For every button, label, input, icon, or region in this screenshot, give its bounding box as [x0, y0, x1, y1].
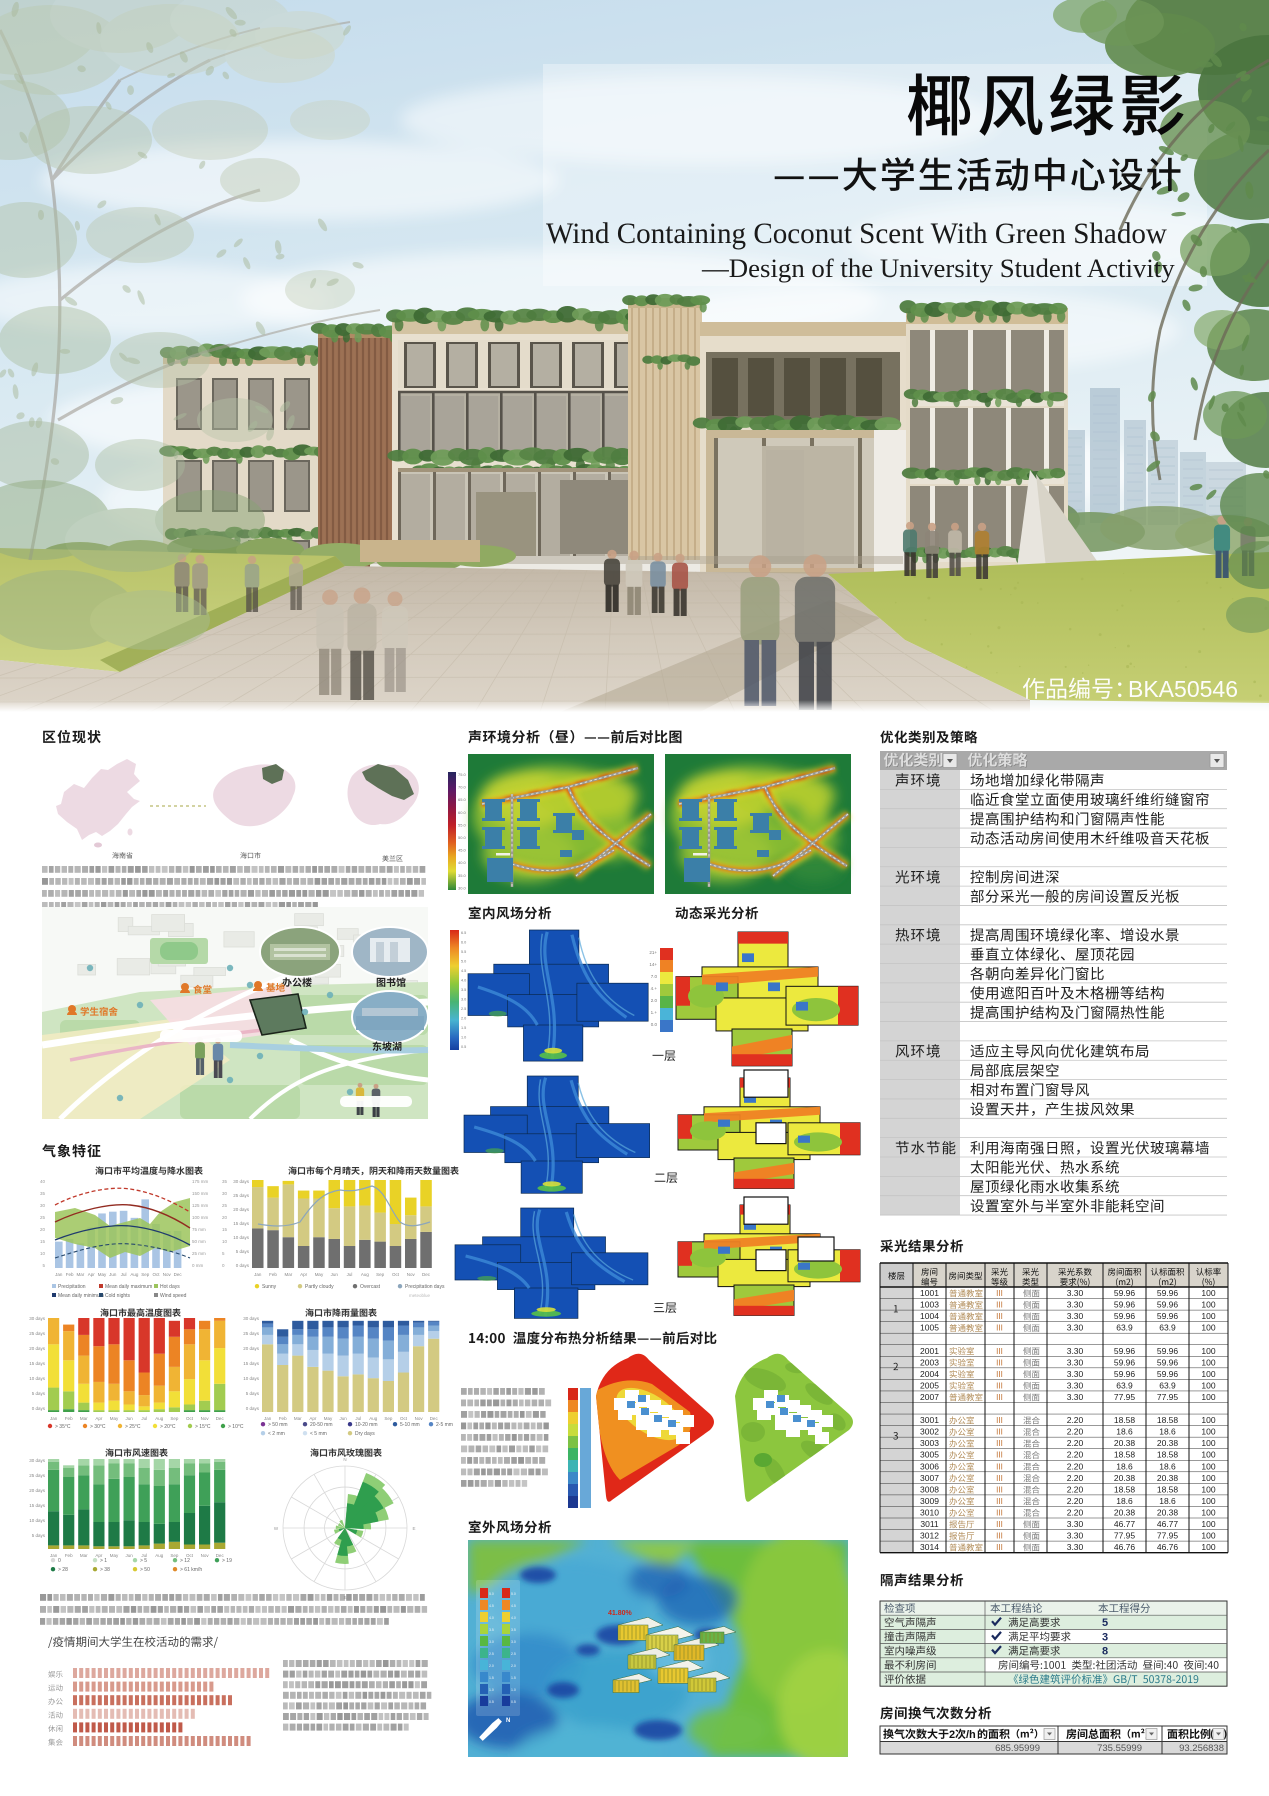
svg-text:Jan: Jan [55, 1272, 63, 1277]
svg-text:Oct: Oct [152, 1272, 160, 1277]
svg-text:125 mm: 125 mm [192, 1203, 209, 1208]
svg-text:III: III [996, 1393, 1003, 1402]
svg-text:100: 100 [1201, 1346, 1215, 1356]
svg-text:5.5: 5.5 [461, 950, 466, 954]
svg-text:Jan: Jan [254, 1272, 262, 1277]
svg-text:> 28: > 28 [58, 1567, 68, 1573]
svg-text:20-50 mm: 20-50 mm [310, 1422, 333, 1428]
svg-text:Sep: Sep [384, 1416, 393, 1421]
svg-text:8: 8 [1102, 1646, 1108, 1658]
svg-text:III: III [996, 1289, 1003, 1298]
svg-text:3.30: 3.30 [1067, 1357, 1084, 1367]
svg-text:35.0: 35.0 [458, 873, 467, 878]
svg-text:18.6: 18.6 [1159, 1427, 1176, 1437]
svg-text:59.96: 59.96 [1157, 1300, 1179, 1310]
svg-text:63.9: 63.9 [1116, 1323, 1133, 1333]
svg-text:18.58: 18.58 [1157, 1415, 1179, 1425]
svg-text:0.5: 0.5 [489, 1700, 494, 1704]
svg-text:Sep: Sep [170, 1553, 179, 1558]
svg-text:4.0: 4.0 [461, 979, 466, 983]
svg-text:25 days: 25 days [233, 1193, 250, 1198]
svg-text:III: III [996, 1428, 1003, 1437]
svg-text:5: 5 [1102, 1617, 1108, 1629]
svg-text:Jun: Jun [125, 1553, 133, 1558]
svg-text:35: 35 [222, 1179, 228, 1184]
svg-text:3.0: 3.0 [511, 1640, 516, 1644]
svg-text:III: III [996, 1301, 1003, 1310]
svg-text:2003: 2003 [920, 1357, 939, 1367]
svg-text:2: 2 [949, 1729, 955, 1741]
svg-text:59.96: 59.96 [1157, 1357, 1179, 1367]
svg-text:May: May [315, 1272, 324, 1277]
svg-text:25: 25 [222, 1203, 228, 1208]
svg-text:III: III [996, 1520, 1003, 1529]
svg-text:59.96: 59.96 [1157, 1311, 1179, 1321]
svg-text:25: 25 [40, 1215, 46, 1220]
svg-text:100: 100 [1201, 1438, 1215, 1448]
svg-text:59.96: 59.96 [1157, 1369, 1179, 1379]
svg-text:50.0: 50.0 [458, 835, 467, 840]
svg-text:59.96: 59.96 [1157, 1288, 1179, 1298]
svg-text:55.0: 55.0 [458, 822, 467, 827]
svg-text:> 5: > 5 [140, 1558, 147, 1564]
svg-text:1.0: 1.0 [461, 1036, 466, 1040]
svg-text:2.20: 2.20 [1067, 1450, 1084, 1460]
svg-text:> 15°C: > 15°C [195, 1424, 211, 1430]
svg-text:5 days: 5 days [32, 1391, 46, 1396]
svg-text:3001: 3001 [920, 1415, 939, 1425]
svg-text:3.30: 3.30 [1067, 1519, 1084, 1529]
svg-text:35: 35 [40, 1191, 46, 1196]
svg-text:2.20: 2.20 [1067, 1507, 1084, 1517]
svg-text:Partly cloudy: Partly cloudy [305, 1284, 334, 1290]
svg-text:100: 100 [1201, 1531, 1215, 1541]
svg-text:30 days: 30 days [29, 1316, 46, 1321]
svg-text:2004: 2004 [920, 1369, 939, 1379]
svg-text:2001: 2001 [920, 1346, 939, 1356]
svg-text:30: 30 [40, 1203, 46, 1208]
svg-text:N: N [343, 1457, 346, 1462]
svg-text:E: E [412, 1526, 415, 1531]
svg-text:Jun: Jun [331, 1272, 339, 1277]
svg-text:3.30: 3.30 [1067, 1531, 1084, 1541]
svg-text:1.+: 1.+ [651, 1010, 658, 1015]
svg-text:15: 15 [40, 1239, 46, 1244]
svg-text:4.5: 4.5 [489, 1604, 494, 1608]
svg-text:Sep: Sep [376, 1272, 385, 1277]
svg-text:Dec: Dec [174, 1272, 183, 1277]
svg-text:> 38: > 38 [100, 1567, 110, 1573]
svg-text:III: III [996, 1381, 1003, 1390]
svg-text:18.58: 18.58 [1114, 1484, 1136, 1494]
svg-text:4.5: 4.5 [461, 969, 466, 973]
svg-text:Nov: Nov [415, 1416, 424, 1421]
svg-text:1.0: 1.0 [511, 1688, 516, 1692]
svg-text:25 mm: 25 mm [192, 1251, 206, 1256]
svg-text:May: May [110, 1416, 119, 1421]
svg-text:20 days: 20 days [29, 1488, 46, 1493]
svg-text:Apr: Apr [300, 1272, 308, 1277]
svg-text:2.20: 2.20 [1067, 1427, 1084, 1437]
svg-text:Aug: Aug [155, 1553, 164, 1558]
svg-text:15 days: 15 days [29, 1503, 46, 1508]
svg-text:2005: 2005 [920, 1380, 939, 1390]
svg-text:5.0: 5.0 [461, 960, 466, 964]
svg-text:2.5: 2.5 [461, 1007, 466, 1011]
svg-text:59.96: 59.96 [1114, 1369, 1136, 1379]
svg-text:/h: /h [966, 1729, 976, 1741]
svg-text:> 1: > 1 [100, 1558, 107, 1564]
svg-text:Aug: Aug [369, 1416, 378, 1421]
svg-text:685.95999: 685.95999 [995, 1743, 1040, 1754]
svg-text:100: 100 [1201, 1300, 1215, 1310]
svg-text:1004: 1004 [920, 1311, 939, 1321]
svg-text:20.38: 20.38 [1114, 1473, 1136, 1483]
svg-text:4.+: 4.+ [651, 986, 658, 991]
svg-text:1003: 1003 [920, 1300, 939, 1310]
svg-text:3005: 3005 [920, 1450, 939, 1460]
svg-text:Overcast: Overcast [360, 1284, 381, 1290]
svg-text:20: 20 [222, 1215, 228, 1220]
svg-text:10 days: 10 days [29, 1376, 46, 1381]
svg-text:15 days: 15 days [233, 1221, 250, 1226]
svg-text:18.58: 18.58 [1157, 1450, 1179, 1460]
svg-text:Jan: Jan [50, 1553, 58, 1558]
svg-text:1.0: 1.0 [489, 1688, 494, 1692]
svg-text:65.0: 65.0 [458, 797, 467, 802]
svg-text:Nov: Nov [407, 1272, 416, 1277]
svg-text:III: III [996, 1508, 1003, 1517]
svg-text:> 61 km/h: > 61 km/h [180, 1567, 202, 1573]
svg-text:100: 100 [1201, 1507, 1215, 1517]
svg-text:Dry days: Dry days [355, 1431, 375, 1437]
svg-text:2.20: 2.20 [1067, 1496, 1084, 1506]
svg-text:18.58: 18.58 [1114, 1450, 1136, 1460]
svg-text:> 35°C: > 35°C [55, 1424, 71, 1430]
svg-text:18.6: 18.6 [1116, 1427, 1133, 1437]
svg-text:III: III [996, 1347, 1003, 1356]
svg-text:III: III [996, 1543, 1003, 1552]
svg-text:100: 100 [1201, 1392, 1215, 1402]
svg-text:Oct: Oct [400, 1416, 408, 1421]
svg-text:III: III [996, 1358, 1003, 1367]
svg-text:III: III [996, 1324, 1003, 1333]
svg-text:Jun: Jun [339, 1416, 347, 1421]
svg-text:> 50: > 50 [140, 1567, 150, 1573]
svg-text:10 days: 10 days [29, 1518, 46, 1523]
svg-text:Wind Containing Coconut Scent: Wind Containing Coconut Scent With Green… [546, 218, 1167, 250]
svg-text:15 days: 15 days [243, 1361, 260, 1366]
svg-text:> 10°C: > 10°C [228, 1424, 244, 1430]
svg-text:Jul: Jul [355, 1416, 361, 1421]
svg-text:1.5: 1.5 [511, 1676, 516, 1680]
svg-text:III: III [996, 1416, 1003, 1425]
svg-text:3014: 3014 [920, 1542, 939, 1552]
svg-text:63.9: 63.9 [1159, 1380, 1176, 1390]
svg-text:3.0: 3.0 [489, 1640, 494, 1644]
svg-text:46.76: 46.76 [1157, 1542, 1179, 1552]
svg-text:III: III [996, 1451, 1003, 1460]
svg-text:3009: 3009 [920, 1496, 939, 1506]
svg-text:20.38: 20.38 [1157, 1473, 1179, 1483]
svg-text:Dec: Dec [430, 1416, 439, 1421]
svg-text:3.0: 3.0 [461, 998, 466, 1002]
svg-text:5 days: 5 days [236, 1249, 250, 1254]
svg-text:175 mm: 175 mm [192, 1179, 209, 1184]
svg-text:2.0: 2.0 [511, 1664, 516, 1668]
svg-text:Mean daily maximum: Mean daily maximum [105, 1284, 152, 1290]
svg-text:25 days: 25 days [29, 1331, 46, 1336]
svg-text:20 days: 20 days [233, 1207, 250, 1212]
svg-text:2.20: 2.20 [1067, 1438, 1084, 1448]
svg-text:75 mm: 75 mm [192, 1227, 206, 1232]
svg-text:46.77: 46.77 [1157, 1519, 1179, 1529]
svg-text:1.5: 1.5 [489, 1676, 494, 1680]
svg-text:100: 100 [1201, 1473, 1215, 1483]
svg-text:3011: 3011 [920, 1519, 939, 1529]
svg-text:18.6: 18.6 [1159, 1496, 1176, 1506]
svg-text:3.30: 3.30 [1067, 1392, 1084, 1402]
svg-text:1005: 1005 [920, 1323, 939, 1333]
svg-text:100: 100 [1201, 1357, 1215, 1367]
svg-text:18.6: 18.6 [1159, 1461, 1176, 1471]
svg-text:Nov: Nov [201, 1553, 210, 1558]
svg-text:III: III [996, 1485, 1003, 1494]
svg-text:Feb: Feb [65, 1553, 73, 1558]
svg-text:18.6: 18.6 [1116, 1496, 1133, 1506]
svg-text:Jul: Jul [121, 1272, 127, 1277]
svg-text:20.38: 20.38 [1157, 1438, 1179, 1448]
svg-text:30.0: 30.0 [458, 885, 467, 890]
svg-text:10: 10 [222, 1239, 228, 1244]
svg-text:0 mm: 0 mm [192, 1263, 204, 1268]
svg-text:Nov: Nov [201, 1416, 210, 1421]
svg-text:100: 100 [1201, 1496, 1215, 1506]
svg-text:Aug: Aug [155, 1416, 164, 1421]
svg-text:20 days: 20 days [29, 1346, 46, 1351]
svg-text:100: 100 [1201, 1369, 1215, 1379]
svg-text:> 20°C: > 20°C [160, 1424, 176, 1430]
svg-text:20: 20 [40, 1227, 46, 1232]
svg-text:18.6: 18.6 [1116, 1461, 1133, 1471]
svg-text:3: 3 [1102, 1631, 1108, 1643]
svg-text:5.0: 5.0 [489, 1592, 494, 1596]
svg-text:3.5: 3.5 [489, 1628, 494, 1632]
svg-text:7.0: 7.0 [651, 974, 658, 979]
svg-text:100: 100 [1201, 1484, 1215, 1494]
svg-text:3006: 3006 [920, 1461, 939, 1471]
svg-text:59.96: 59.96 [1114, 1300, 1136, 1310]
svg-text:Mar: Mar [80, 1416, 88, 1421]
svg-text:100 mm: 100 mm [192, 1215, 209, 1220]
svg-text:3007: 3007 [920, 1473, 939, 1483]
svg-text:77.95: 77.95 [1114, 1392, 1136, 1402]
svg-text:30 days: 30 days [29, 1458, 46, 1463]
svg-text:100: 100 [1201, 1415, 1215, 1425]
svg-text:< 2 mm: < 2 mm [268, 1431, 285, 1437]
svg-text:Dec: Dec [422, 1272, 431, 1277]
svg-text:3.30: 3.30 [1067, 1369, 1084, 1379]
svg-text:20.38: 20.38 [1114, 1507, 1136, 1517]
svg-text:3.5: 3.5 [511, 1628, 516, 1632]
svg-text:> 25°C: > 25°C [125, 1424, 141, 1430]
svg-text:15: 15 [222, 1227, 228, 1232]
svg-text:> 30°C: > 30°C [90, 1424, 106, 1430]
svg-text:0: 0 [58, 1558, 61, 1564]
svg-text:3.30: 3.30 [1067, 1288, 1084, 1298]
svg-text:Oct: Oct [392, 1272, 400, 1277]
svg-text:18.58: 18.58 [1157, 1484, 1179, 1494]
svg-text:Nov: Nov [163, 1272, 172, 1277]
svg-text:Oct: Oct [186, 1416, 194, 1421]
svg-text:N: N [506, 1718, 510, 1724]
svg-text:III: III [996, 1439, 1003, 1448]
svg-text:15 days: 15 days [29, 1361, 46, 1366]
svg-text:63.9: 63.9 [1159, 1323, 1176, 1333]
svg-text:Feb: Feb [279, 1416, 287, 1421]
svg-text:Sunny: Sunny [262, 1284, 277, 1290]
svg-text:20.38: 20.38 [1114, 1438, 1136, 1448]
svg-text:4.0: 4.0 [489, 1616, 494, 1620]
svg-text:77.95: 77.95 [1157, 1392, 1179, 1402]
svg-text:100: 100 [1201, 1288, 1215, 1298]
svg-text:63.9: 63.9 [1116, 1380, 1133, 1390]
svg-text:3010: 3010 [920, 1507, 939, 1517]
svg-text:Jun: Jun [109, 1272, 117, 1277]
svg-text:Sep: Sep [141, 1272, 150, 1277]
svg-text:59.96: 59.96 [1114, 1288, 1136, 1298]
svg-text:30 days: 30 days [243, 1316, 260, 1321]
svg-text:100: 100 [1201, 1323, 1215, 1333]
svg-text:59.96: 59.96 [1114, 1346, 1136, 1356]
svg-text:< 5 mm: < 5 mm [310, 1431, 327, 1437]
svg-text:0 days: 0 days [32, 1406, 46, 1411]
svg-text:5 days: 5 days [246, 1391, 260, 1396]
svg-text:Mar: Mar [294, 1416, 302, 1421]
svg-text:0.5: 0.5 [461, 1045, 466, 1049]
svg-text:Mar: Mar [80, 1553, 88, 1558]
svg-text:III: III [996, 1370, 1003, 1379]
svg-text:59.96: 59.96 [1114, 1311, 1136, 1321]
svg-text:Apr: Apr [95, 1416, 103, 1421]
svg-text:0.5: 0.5 [511, 1700, 516, 1704]
svg-text:6.5: 6.5 [461, 931, 466, 935]
svg-text:Mar: Mar [284, 1272, 292, 1277]
svg-text:Apr: Apr [88, 1272, 96, 1277]
svg-text:2.0: 2.0 [489, 1664, 494, 1668]
svg-text:meteoblue: meteoblue [409, 1293, 431, 1298]
svg-text:Jan: Jan [264, 1416, 272, 1421]
svg-text:50 mm: 50 mm [192, 1239, 206, 1244]
svg-text:150 mm: 150 mm [192, 1191, 209, 1196]
svg-text:3.30: 3.30 [1067, 1346, 1084, 1356]
svg-text:May: May [324, 1416, 333, 1421]
svg-text:0.0: 0.0 [651, 1022, 658, 1027]
svg-text:3.30: 3.30 [1067, 1323, 1084, 1333]
svg-text:1001: 1001 [920, 1288, 939, 1298]
svg-text:1.5: 1.5 [461, 1026, 466, 1030]
svg-text:Jan: Jan [50, 1416, 58, 1421]
svg-text:10-20 mm: 10-20 mm [355, 1422, 378, 1428]
svg-text:0 days: 0 days [236, 1263, 250, 1268]
svg-text:2.20: 2.20 [1067, 1484, 1084, 1494]
svg-text:2.20: 2.20 [1067, 1473, 1084, 1483]
svg-text:45.0: 45.0 [458, 848, 467, 853]
svg-text:41.80%: 41.80% [608, 1610, 633, 1617]
svg-text:5-10 mm: 5-10 mm [400, 1422, 420, 1428]
svg-text:Wind speed: Wind speed [160, 1293, 187, 1299]
svg-text:III: III [996, 1497, 1003, 1506]
svg-text:100: 100 [1201, 1519, 1215, 1529]
svg-text:Mean daily minimum: Mean daily minimum [58, 1293, 104, 1299]
svg-text:Sep: Sep [170, 1416, 179, 1421]
svg-text:93.256838: 93.256838 [1179, 1743, 1224, 1754]
svg-text:3002: 3002 [920, 1427, 939, 1437]
svg-text:3.5: 3.5 [461, 988, 466, 992]
svg-text:3.30: 3.30 [1067, 1380, 1084, 1390]
svg-text:BKA50546: BKA50546 [1128, 676, 1238, 702]
svg-text:100: 100 [1201, 1461, 1215, 1471]
svg-text:Feb: Feb [65, 1416, 73, 1421]
svg-text:100: 100 [1201, 1427, 1215, 1437]
svg-text:Mar: Mar [77, 1272, 85, 1277]
svg-text:20.38: 20.38 [1157, 1507, 1179, 1517]
svg-text:10: 10 [40, 1251, 46, 1256]
svg-text:Aug: Aug [130, 1272, 139, 1277]
svg-text:Apr: Apr [309, 1416, 317, 1421]
svg-text:Jul: Jul [141, 1416, 147, 1421]
svg-text:2.5: 2.5 [511, 1652, 516, 1656]
svg-text:4.5: 4.5 [511, 1604, 516, 1608]
svg-text:Precipitation days: Precipitation days [405, 1284, 445, 1290]
svg-text:77.95: 77.95 [1157, 1531, 1179, 1541]
svg-text:Jun: Jun [125, 1416, 133, 1421]
svg-text:735.55999: 735.55999 [1097, 1743, 1142, 1754]
svg-text:Precipitation: Precipitation [58, 1284, 86, 1290]
svg-text:30: 30 [222, 1191, 228, 1196]
svg-text:100: 100 [1201, 1542, 1215, 1552]
svg-text:3.30: 3.30 [1067, 1542, 1084, 1552]
svg-text:0 days: 0 days [246, 1406, 260, 1411]
svg-text:18.58: 18.58 [1114, 1415, 1136, 1425]
svg-text:> 50 mm: > 50 mm [268, 1422, 288, 1428]
svg-text:May: May [110, 1553, 119, 1558]
svg-text:6.0: 6.0 [461, 941, 466, 945]
svg-text:III: III [996, 1474, 1003, 1483]
svg-text:III: III [996, 1532, 1003, 1541]
svg-text:III: III [996, 1462, 1003, 1471]
svg-text:75.0: 75.0 [458, 772, 467, 777]
svg-text:4.0: 4.0 [511, 1616, 516, 1620]
svg-text:100: 100 [1201, 1311, 1215, 1321]
svg-text:Dec: Dec [216, 1416, 225, 1421]
svg-text:3012: 3012 [920, 1531, 939, 1541]
svg-text:Feb: Feb [269, 1272, 277, 1277]
svg-text:2007: 2007 [920, 1392, 939, 1402]
svg-text:60.0: 60.0 [458, 810, 467, 815]
svg-text:—Design of the University Stud: —Design of the University Student Activi… [701, 253, 1175, 283]
svg-text:59.96: 59.96 [1114, 1357, 1136, 1367]
svg-text:3008: 3008 [920, 1484, 939, 1494]
svg-text:3003: 3003 [920, 1438, 939, 1448]
svg-text:46.77: 46.77 [1114, 1519, 1136, 1529]
svg-text:2.20: 2.20 [1067, 1461, 1084, 1471]
svg-text:46.76: 46.76 [1114, 1542, 1136, 1552]
svg-text:2-5 mm: 2-5 mm [436, 1422, 453, 1428]
svg-text:III: III [996, 1312, 1003, 1321]
svg-text:> 12: > 12 [180, 1558, 190, 1564]
svg-text:14+: 14+ [649, 962, 657, 967]
